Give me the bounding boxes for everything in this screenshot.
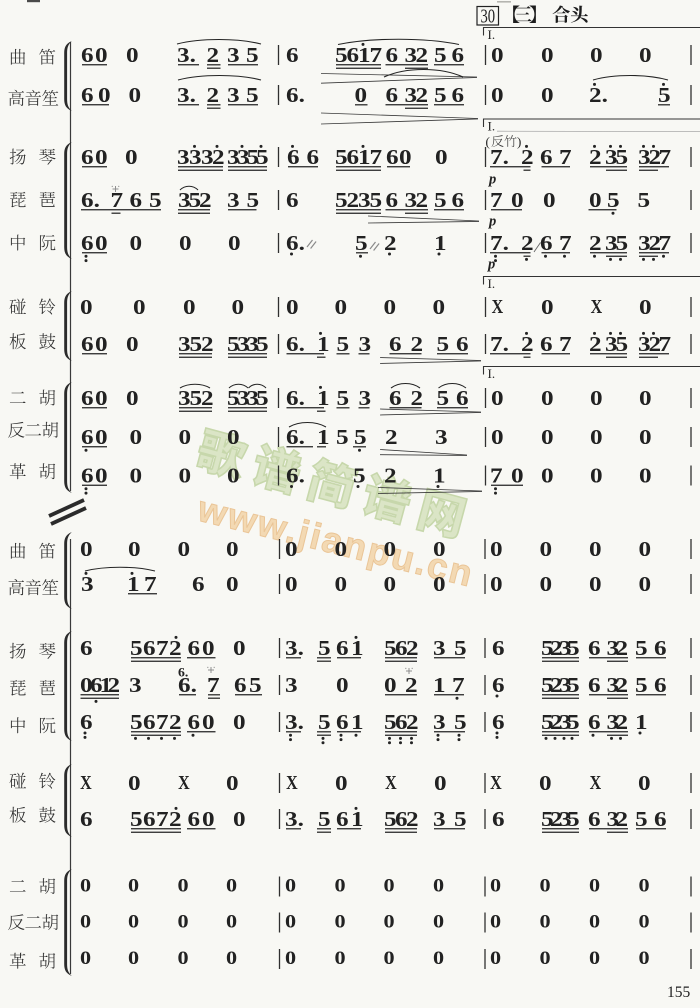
svg-text:0: 0: [232, 296, 245, 320]
svg-text:0: 0: [384, 296, 397, 320]
svg-text:0: 0: [80, 538, 93, 562]
svg-text:0: 0: [541, 84, 554, 108]
svg-text:2: 2: [416, 84, 429, 108]
svg-text:2: 2: [384, 232, 397, 256]
svg-text:5: 5: [454, 637, 467, 661]
svg-text:0: 0: [639, 912, 650, 932]
svg-text:6: 6: [143, 637, 156, 661]
svg-text:6: 6: [143, 808, 156, 832]
svg-text:0: 0: [178, 912, 189, 932]
svg-text:6: 6: [588, 674, 601, 698]
svg-text:(: (: [486, 134, 490, 149]
svg-text:2: 2: [199, 189, 212, 213]
svg-text:6: 6: [492, 808, 505, 832]
svg-text:6.: 6.: [286, 387, 305, 411]
svg-text:0: 0: [541, 464, 554, 488]
svg-text:3.: 3.: [177, 84, 196, 108]
svg-text:3: 3: [433, 637, 446, 661]
svg-text:0: 0: [490, 949, 501, 969]
svg-text:6.: 6.: [286, 464, 305, 488]
svg-text:0: 0: [80, 876, 91, 896]
svg-text:0: 0: [126, 333, 139, 357]
svg-text:1: 1: [351, 711, 364, 735]
svg-text:0: 0: [128, 772, 141, 796]
svg-text:6: 6: [80, 808, 93, 832]
svg-text:0: 0: [639, 296, 652, 320]
svg-text:0: 0: [226, 912, 237, 932]
svg-text:0: 0: [511, 464, 524, 488]
svg-text:6: 6: [81, 146, 94, 170]
svg-text:6: 6: [336, 808, 349, 832]
svg-text:3.: 3.: [285, 637, 304, 661]
svg-text:6.: 6.: [286, 84, 305, 108]
svg-text:0: 0: [590, 44, 603, 68]
svg-text:6: 6: [80, 711, 93, 735]
svg-text:2: 2: [201, 387, 214, 411]
svg-text:5: 5: [454, 711, 467, 735]
svg-text:0: 0: [540, 876, 551, 896]
svg-text:0: 0: [183, 296, 196, 320]
svg-text:5: 5: [256, 387, 269, 411]
svg-text:0: 0: [639, 573, 652, 597]
svg-text:2: 2: [169, 808, 182, 832]
svg-text:5: 5: [567, 711, 580, 735]
svg-text:6: 6: [386, 84, 399, 108]
svg-text:6: 6: [188, 808, 201, 832]
svg-text:7: 7: [370, 146, 383, 170]
svg-text:0: 0: [95, 387, 108, 411]
svg-text:1: 1: [433, 674, 446, 698]
svg-text:0: 0: [233, 711, 246, 735]
svg-text:3: 3: [129, 674, 142, 698]
svg-text:7: 7: [659, 146, 672, 170]
svg-text:5: 5: [247, 189, 260, 213]
svg-text:7: 7: [659, 232, 672, 256]
svg-text:I.: I.: [488, 27, 496, 42]
svg-text:5: 5: [370, 189, 383, 213]
svg-text:X: X: [591, 295, 603, 317]
svg-text:5: 5: [354, 426, 367, 450]
svg-text:5: 5: [246, 84, 259, 108]
svg-text:7: 7: [559, 146, 572, 170]
svg-text:0: 0: [202, 808, 215, 832]
svg-text:1: 1: [317, 333, 330, 357]
svg-text:2: 2: [406, 808, 419, 832]
svg-text:5: 5: [149, 189, 162, 213]
svg-text:2: 2: [406, 711, 419, 735]
svg-text:0: 0: [384, 674, 397, 698]
svg-text:0: 0: [435, 146, 448, 170]
svg-text:0: 0: [433, 912, 444, 932]
svg-text:5: 5: [246, 44, 259, 68]
svg-text:0: 0: [80, 912, 91, 932]
svg-text:5: 5: [130, 711, 143, 735]
svg-text:5: 5: [355, 232, 368, 256]
svg-text:0: 0: [384, 949, 395, 969]
svg-text:2: 2: [207, 84, 220, 108]
svg-text:3: 3: [81, 573, 94, 597]
svg-text:0: 0: [639, 464, 652, 488]
svg-text:2: 2: [169, 637, 182, 661]
svg-text:5: 5: [337, 387, 350, 411]
svg-text:6: 6: [336, 711, 349, 735]
svg-text:0: 0: [233, 808, 246, 832]
svg-text:1: 1: [635, 711, 648, 735]
svg-text:2: 2: [207, 44, 220, 68]
svg-text:6: 6: [654, 674, 667, 698]
svg-text:X: X: [286, 771, 298, 793]
svg-text:3.: 3.: [177, 44, 196, 68]
svg-text:3: 3: [227, 44, 240, 68]
svg-text:0: 0: [589, 949, 600, 969]
svg-text:5: 5: [318, 711, 331, 735]
svg-text:2: 2: [411, 333, 424, 357]
svg-text:0: 0: [178, 538, 191, 562]
svg-text:3: 3: [227, 84, 240, 108]
svg-text:0: 0: [128, 538, 141, 562]
svg-text:7: 7: [156, 711, 169, 735]
svg-text:0: 0: [95, 464, 108, 488]
svg-text:0: 0: [335, 949, 346, 969]
svg-text:3: 3: [189, 146, 202, 170]
svg-text:0: 0: [95, 44, 108, 68]
svg-text:5: 5: [437, 387, 450, 411]
svg-text:0: 0: [129, 84, 142, 108]
svg-text:X: X: [385, 771, 397, 793]
svg-text:0: 0: [80, 296, 93, 320]
svg-text:6: 6: [81, 84, 94, 108]
svg-text:6: 6: [143, 711, 156, 735]
svg-text:0: 0: [130, 232, 143, 256]
svg-text:0: 0: [285, 912, 296, 932]
svg-text:0: 0: [589, 573, 602, 597]
svg-text:0: 0: [128, 949, 139, 969]
svg-text:0: 0: [95, 146, 108, 170]
svg-text:6: 6: [188, 637, 201, 661]
svg-text:2: 2: [385, 426, 398, 450]
svg-text:0: 0: [639, 538, 652, 562]
svg-text:6: 6: [588, 808, 601, 832]
svg-text:0: 0: [128, 876, 139, 896]
svg-text:2: 2: [416, 189, 429, 213]
svg-text:0: 0: [335, 912, 346, 932]
svg-text:6.: 6.: [81, 189, 100, 213]
svg-text:0: 0: [285, 538, 298, 562]
svg-text:X: X: [492, 295, 504, 317]
svg-text:0: 0: [335, 296, 348, 320]
svg-text:5: 5: [318, 808, 331, 832]
svg-text:7.: 7.: [490, 146, 509, 170]
svg-text:5: 5: [434, 84, 447, 108]
svg-text:0: 0: [491, 44, 504, 68]
svg-text:1: 1: [351, 637, 364, 661]
svg-text:0: 0: [589, 876, 600, 896]
svg-text:0: 0: [433, 876, 444, 896]
svg-text:2: 2: [616, 637, 629, 661]
svg-text:6: 6: [81, 333, 94, 357]
svg-text:5: 5: [249, 674, 262, 698]
svg-text:0: 0: [433, 949, 444, 969]
svg-text:7: 7: [156, 808, 169, 832]
svg-text:5: 5: [434, 44, 447, 68]
svg-text:6: 6: [588, 637, 601, 661]
svg-text:5: 5: [567, 808, 580, 832]
svg-text:155: 155: [667, 984, 691, 1001]
svg-text:5: 5: [130, 637, 143, 661]
svg-text:0: 0: [286, 296, 299, 320]
svg-text:5: 5: [256, 333, 269, 357]
svg-text:3: 3: [359, 333, 372, 357]
svg-text:0: 0: [95, 232, 108, 256]
svg-text:6.: 6.: [286, 333, 305, 357]
svg-text:5: 5: [567, 637, 580, 661]
svg-text:6: 6: [386, 189, 399, 213]
svg-text:0: 0: [95, 333, 108, 357]
svg-text:7: 7: [490, 464, 503, 488]
svg-text:6: 6: [492, 711, 505, 735]
svg-text:0: 0: [80, 949, 91, 969]
svg-text:0: 0: [540, 538, 553, 562]
svg-text:7: 7: [452, 674, 465, 698]
svg-text:0: 0: [491, 426, 504, 450]
svg-text:5: 5: [256, 146, 269, 170]
svg-text:0: 0: [125, 146, 138, 170]
svg-text:7: 7: [111, 189, 124, 213]
svg-text:6: 6: [192, 573, 205, 597]
svg-text:5: 5: [336, 426, 349, 450]
svg-text:0: 0: [179, 464, 192, 488]
svg-text:6: 6: [286, 44, 299, 68]
svg-text:6: 6: [81, 44, 94, 68]
svg-text:0: 0: [490, 573, 503, 597]
svg-text:0: 0: [285, 949, 296, 969]
svg-text:3: 3: [227, 189, 240, 213]
svg-text:0: 0: [130, 426, 143, 450]
svg-text:7.: 7.: [490, 333, 509, 357]
svg-text:2: 2: [384, 464, 397, 488]
svg-text:1: 1: [127, 573, 140, 597]
svg-text:0: 0: [128, 912, 139, 932]
svg-text:7: 7: [156, 637, 169, 661]
svg-text:6: 6: [81, 232, 94, 256]
svg-text:0: 0: [590, 387, 603, 411]
svg-text:2: 2: [616, 808, 629, 832]
svg-text:I.: I.: [488, 276, 496, 291]
svg-text:0: 0: [130, 464, 143, 488]
svg-text:5: 5: [616, 232, 629, 256]
svg-text:6.: 6.: [286, 232, 305, 256]
svg-text:0: 0: [639, 387, 652, 411]
svg-text:2: 2: [521, 146, 534, 170]
svg-text:6: 6: [130, 189, 143, 213]
svg-text:6: 6: [492, 674, 505, 698]
svg-text:5: 5: [616, 146, 629, 170]
svg-text:p: p: [487, 214, 496, 230]
svg-text:0: 0: [540, 573, 553, 597]
svg-text:6: 6: [588, 711, 601, 735]
svg-text:0: 0: [491, 387, 504, 411]
svg-text:5: 5: [616, 333, 629, 357]
svg-text:5: 5: [638, 189, 651, 213]
svg-text:0: 0: [179, 232, 192, 256]
svg-text:5: 5: [635, 808, 648, 832]
svg-text:0: 0: [336, 674, 349, 698]
svg-text:0: 0: [639, 426, 652, 450]
svg-text:7.: 7.: [490, 232, 509, 256]
svg-text:0: 0: [95, 426, 108, 450]
svg-text:2: 2: [521, 232, 534, 256]
svg-text:3: 3: [433, 711, 446, 735]
svg-text:6: 6: [336, 637, 349, 661]
svg-text:7: 7: [559, 333, 572, 357]
svg-text:2: 2: [616, 711, 629, 735]
svg-text:0: 0: [433, 538, 446, 562]
svg-text:0: 0: [126, 44, 139, 68]
svg-text:30: 30: [481, 5, 496, 26]
svg-text:0: 0: [491, 84, 504, 108]
svg-text:5: 5: [437, 333, 450, 357]
svg-text:0: 0: [490, 912, 501, 932]
svg-text:0: 0: [590, 464, 603, 488]
svg-text:0: 0: [511, 189, 524, 213]
svg-text:2: 2: [169, 711, 182, 735]
svg-text:0: 0: [589, 912, 600, 932]
svg-text:0: 0: [399, 146, 412, 170]
svg-text:0: 0: [178, 876, 189, 896]
svg-text:6: 6: [389, 333, 402, 357]
svg-text:5: 5: [635, 674, 648, 698]
svg-text:0: 0: [384, 538, 397, 562]
svg-text:0: 0: [384, 912, 395, 932]
svg-text:6: 6: [287, 146, 300, 170]
svg-text:0: 0: [589, 189, 602, 213]
svg-text:0: 0: [540, 912, 551, 932]
svg-text:0: 0: [227, 426, 240, 450]
svg-text:0: 0: [590, 426, 603, 450]
svg-text:6: 6: [654, 808, 667, 832]
svg-text:3: 3: [177, 146, 190, 170]
svg-text:0: 0: [355, 84, 368, 108]
svg-text:1: 1: [434, 232, 447, 256]
svg-text:6: 6: [307, 146, 320, 170]
svg-text:2: 2: [589, 146, 602, 170]
svg-text:0: 0: [490, 876, 501, 896]
svg-text:X: X: [80, 771, 92, 793]
svg-text:0: 0: [638, 772, 651, 796]
svg-text:5: 5: [454, 808, 467, 832]
svg-text:6: 6: [452, 44, 465, 68]
svg-text:0: 0: [335, 772, 348, 796]
svg-text:6: 6: [389, 387, 402, 411]
svg-text:0: 0: [227, 464, 240, 488]
svg-text:0: 0: [178, 949, 189, 969]
svg-text:6: 6: [492, 637, 505, 661]
svg-text:X: X: [590, 771, 602, 793]
svg-text:X: X: [490, 771, 502, 793]
svg-text:0: 0: [228, 232, 241, 256]
svg-text:0: 0: [226, 949, 237, 969]
svg-text:5: 5: [607, 189, 620, 213]
svg-text:2: 2: [589, 232, 602, 256]
svg-text:6.: 6.: [178, 665, 188, 679]
svg-text:5: 5: [353, 464, 366, 488]
svg-text:5: 5: [434, 189, 447, 213]
svg-text:5: 5: [130, 808, 143, 832]
svg-text:0: 0: [226, 772, 239, 796]
svg-text:0: 0: [98, 84, 111, 108]
svg-text:6: 6: [188, 711, 201, 735]
svg-text:3: 3: [435, 426, 448, 450]
svg-text:7: 7: [207, 674, 220, 698]
svg-text:0: 0: [639, 44, 652, 68]
svg-text:6.: 6.: [286, 426, 305, 450]
svg-text:0: 0: [179, 426, 192, 450]
svg-text:6: 6: [81, 464, 94, 488]
svg-text:0: 0: [202, 711, 215, 735]
svg-text:2: 2: [108, 674, 121, 698]
svg-text:0: 0: [335, 573, 348, 597]
svg-text:6: 6: [540, 146, 553, 170]
svg-text:X: X: [178, 771, 190, 793]
svg-text:0: 0: [589, 538, 602, 562]
svg-text:0: 0: [226, 538, 239, 562]
svg-text:0: 0: [541, 387, 554, 411]
svg-text:5: 5: [318, 637, 331, 661]
svg-text:0: 0: [541, 296, 554, 320]
svg-text:2: 2: [616, 674, 629, 698]
svg-text:I.: I.: [488, 366, 496, 381]
svg-text:6: 6: [452, 189, 465, 213]
svg-text:1: 1: [433, 464, 446, 488]
svg-text:2: 2: [411, 387, 424, 411]
svg-text:0: 0: [384, 876, 395, 896]
svg-text:2: 2: [589, 333, 602, 357]
svg-text:7: 7: [144, 573, 157, 597]
svg-text:5: 5: [337, 333, 350, 357]
svg-text:): ): [517, 134, 521, 149]
svg-text:1: 1: [351, 808, 364, 832]
svg-text:I.: I.: [488, 119, 496, 134]
svg-text:0: 0: [202, 637, 215, 661]
svg-text:6: 6: [286, 189, 299, 213]
svg-text:0: 0: [233, 637, 246, 661]
svg-text:0: 0: [541, 426, 554, 450]
svg-text:0: 0: [335, 876, 346, 896]
svg-text:6: 6: [81, 426, 94, 450]
svg-text:3: 3: [433, 808, 446, 832]
svg-text:2: 2: [521, 333, 534, 357]
svg-text:6: 6: [81, 387, 94, 411]
svg-text:2.: 2.: [589, 84, 608, 108]
svg-text:7: 7: [559, 232, 572, 256]
svg-text:0: 0: [226, 876, 237, 896]
svg-text:6: 6: [456, 333, 469, 357]
svg-text:2: 2: [201, 333, 214, 357]
svg-text:0: 0: [539, 772, 552, 796]
svg-text:6: 6: [452, 84, 465, 108]
svg-text:0: 0: [126, 387, 139, 411]
svg-text:5: 5: [658, 84, 671, 108]
svg-text:0: 0: [226, 573, 239, 597]
svg-text:0: 0: [541, 44, 554, 68]
svg-text:6: 6: [540, 232, 553, 256]
svg-text:2: 2: [405, 674, 418, 698]
svg-text:3.: 3.: [285, 711, 304, 735]
svg-text:0: 0: [639, 949, 650, 969]
svg-text:1: 1: [317, 426, 330, 450]
svg-text:3: 3: [285, 674, 298, 698]
svg-text:6: 6: [234, 674, 247, 698]
